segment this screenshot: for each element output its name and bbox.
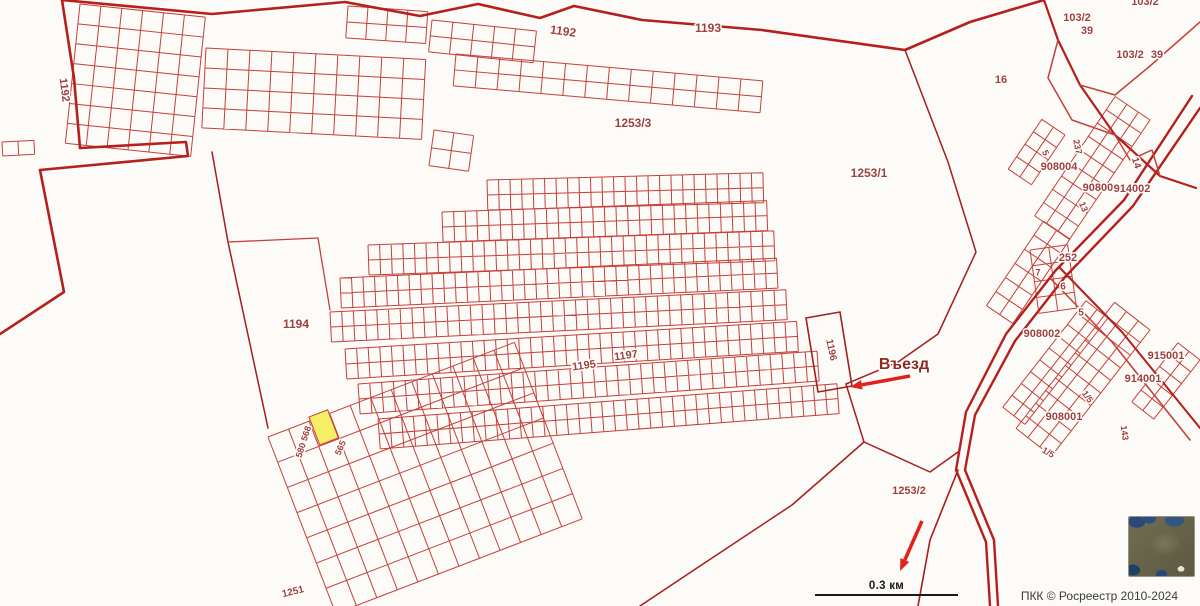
- map-label: 103/2: [1116, 49, 1144, 61]
- map-label: 1/5: [1080, 389, 1095, 405]
- map-label: 565: [333, 439, 348, 457]
- map-label: 1193: [695, 21, 721, 35]
- selected-parcel-highlight[interactable]: [309, 410, 338, 445]
- parcel-grid: [378, 384, 839, 449]
- map-label: 14: [1129, 156, 1143, 170]
- map-label: 5: [1040, 148, 1051, 157]
- map-label: Въезд: [879, 356, 929, 373]
- map-label: 1192: [549, 22, 577, 40]
- quarter-boundary-left: [62, 0, 80, 148]
- boundary-parcel-16: [846, 50, 976, 384]
- map-label: 915001: [1148, 350, 1185, 362]
- parcel-grid: [429, 130, 474, 171]
- cadastral-map[interactable]: 1192119211931253/31253/116103/239103/239…: [0, 0, 1200, 606]
- direction-arrow-shaft: [905, 521, 922, 560]
- map-label: 39: [1151, 49, 1163, 61]
- map-label: 143: [1119, 425, 1131, 441]
- parcel-grid: [453, 54, 763, 113]
- map-label: 103/2: [1063, 12, 1091, 24]
- entrance-arrow-shaft: [862, 376, 910, 385]
- map-label: 16: [995, 74, 1007, 86]
- map-label: 7: [1035, 267, 1040, 277]
- map-viewport[interactable]: 1192119211931253/31253/116103/239103/239…: [0, 0, 1200, 606]
- map-label: 580 568: [294, 425, 314, 459]
- map-label: 5: [1078, 308, 1084, 319]
- boundary-1253-2-west: [640, 442, 864, 606]
- map-label: 1195: [571, 358, 596, 373]
- direction-arrow-head: [900, 558, 909, 571]
- parcel-grid: [346, 6, 428, 44]
- map-label: 6: [1060, 282, 1066, 293]
- map-label: 1253/1: [851, 166, 888, 180]
- wedge-103-2-a: [1044, 0, 1196, 188]
- road-branch-a: [1060, 268, 1200, 428]
- parcel-grid: [1008, 119, 1065, 184]
- boundary-1194-west: [212, 152, 268, 428]
- map-label: 1253/2: [892, 485, 926, 497]
- parcel-grid: [368, 231, 775, 275]
- map-label: 237: [1071, 138, 1084, 155]
- map-label: 1196: [823, 338, 838, 362]
- quarter-boundary-left-jog: [40, 142, 188, 170]
- map-label: 252: [1059, 252, 1077, 264]
- parcel-grid: [202, 48, 426, 139]
- map-label: 908001: [1046, 411, 1083, 423]
- map-label: 1/5: [1040, 445, 1056, 460]
- direction-arrow: [900, 521, 922, 571]
- map-label: 914001: [1125, 373, 1162, 385]
- quarter-boundary-left-lower: [0, 170, 64, 334]
- parcel-grid: [2, 140, 35, 156]
- boundary-1253-2-north: [846, 384, 958, 472]
- map-label: 1251: [281, 584, 306, 600]
- satellite-layer-thumbnail[interactable]: [1128, 516, 1195, 577]
- map-label: 1253/3: [615, 116, 652, 130]
- map-label: 914002: [1114, 183, 1151, 195]
- map-label: 1194: [283, 317, 309, 331]
- boundary-1194-east: [228, 238, 330, 310]
- map-label: 39: [1081, 25, 1093, 37]
- map-label: 908004: [1041, 161, 1079, 173]
- map-label: 1192: [57, 77, 72, 102]
- map-attribution: ПКК © Росреестр 2010-2024: [1021, 589, 1178, 603]
- parcel-grid: [65, 4, 205, 156]
- parcel-grid: [487, 173, 764, 210]
- map-label: 103/2: [1131, 0, 1159, 8]
- map-label: 908002: [1024, 328, 1061, 340]
